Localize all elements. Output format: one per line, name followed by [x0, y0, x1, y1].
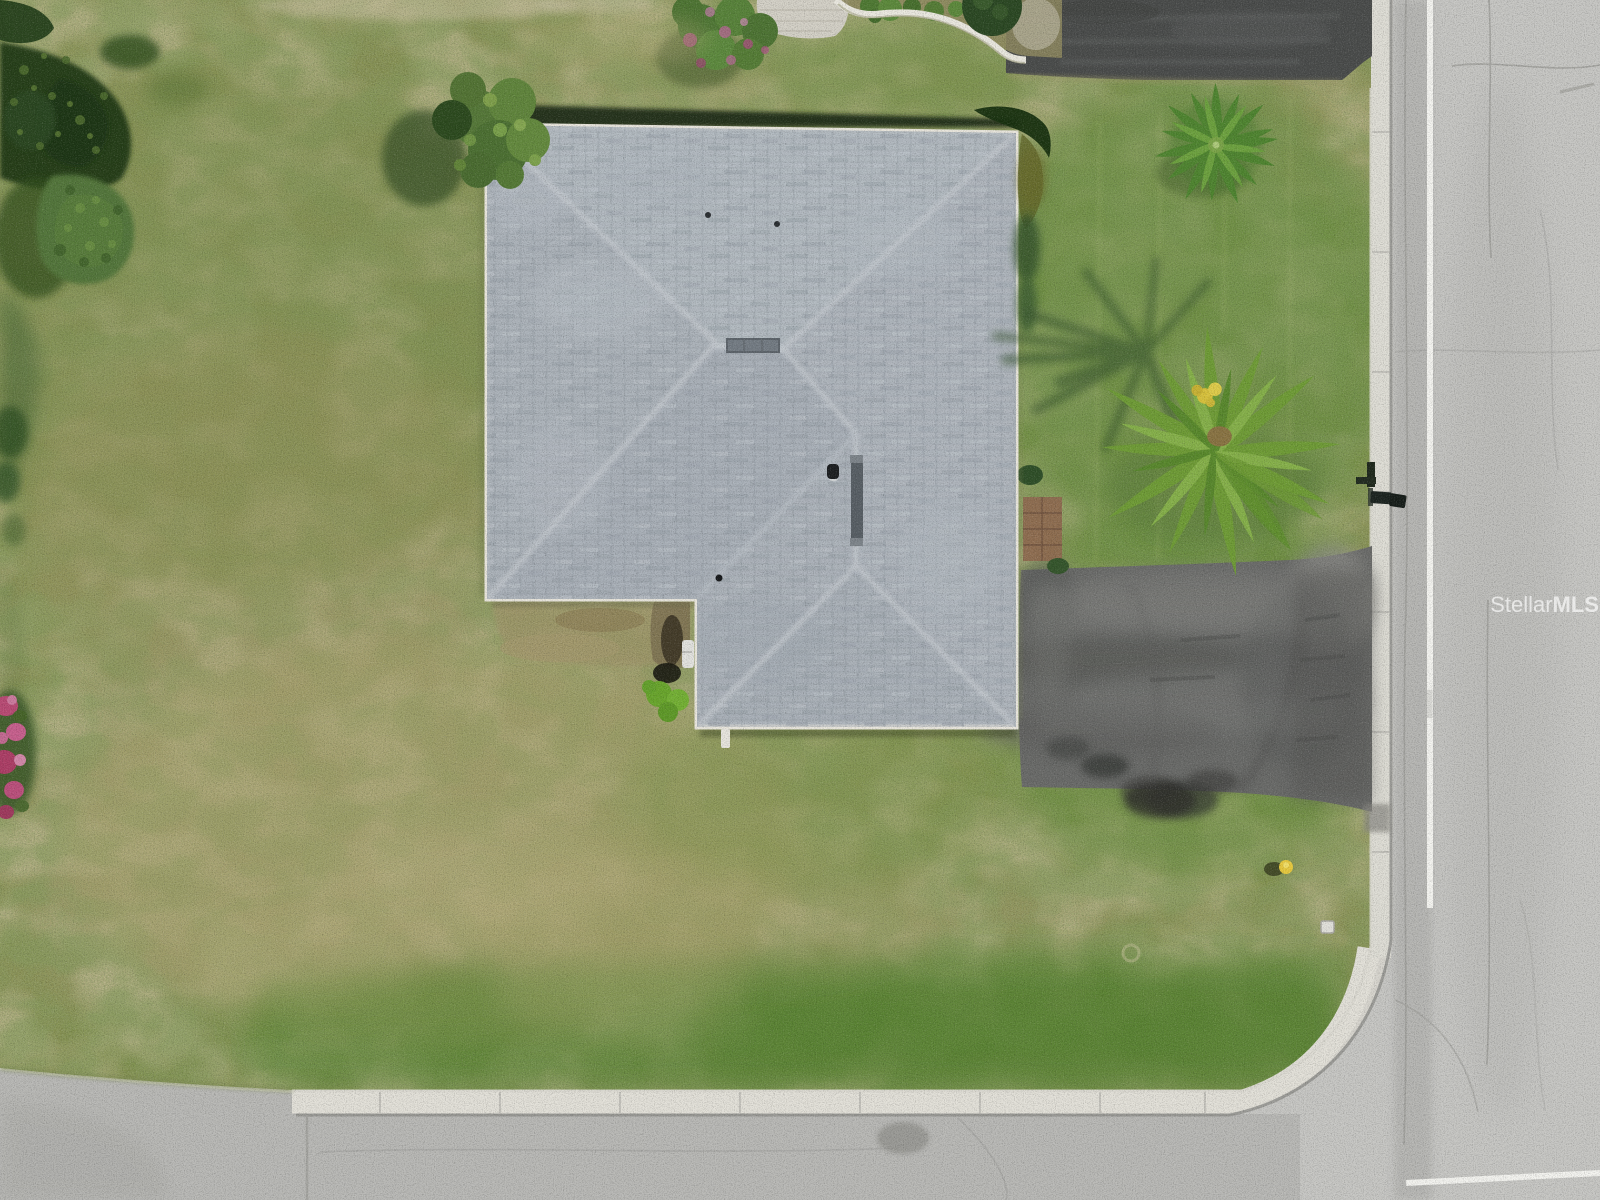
svg-text:StellarMLS: StellarMLS	[1490, 592, 1599, 617]
